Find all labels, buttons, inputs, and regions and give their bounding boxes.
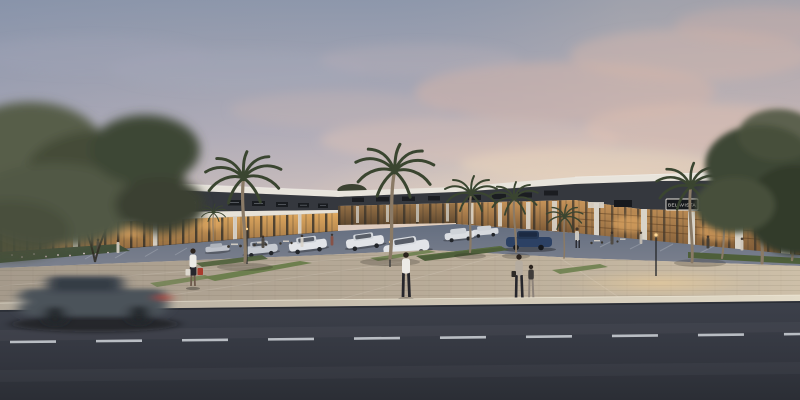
headlight-streak (12, 300, 26, 304)
tail-light-streak (156, 295, 171, 300)
plaza-warm-light (570, 269, 750, 297)
white-shopping-bag (186, 269, 191, 276)
mall-center-section (338, 187, 456, 225)
store-sign-belavista: BELAVISTA (666, 199, 698, 210)
store-sign-label: BELAVISTA (668, 203, 696, 208)
red-shopping-bag (198, 268, 204, 275)
rendering-canvas: DOCE PÃO DOCE PÃO (0, 0, 800, 400)
hand-bag (512, 271, 517, 277)
